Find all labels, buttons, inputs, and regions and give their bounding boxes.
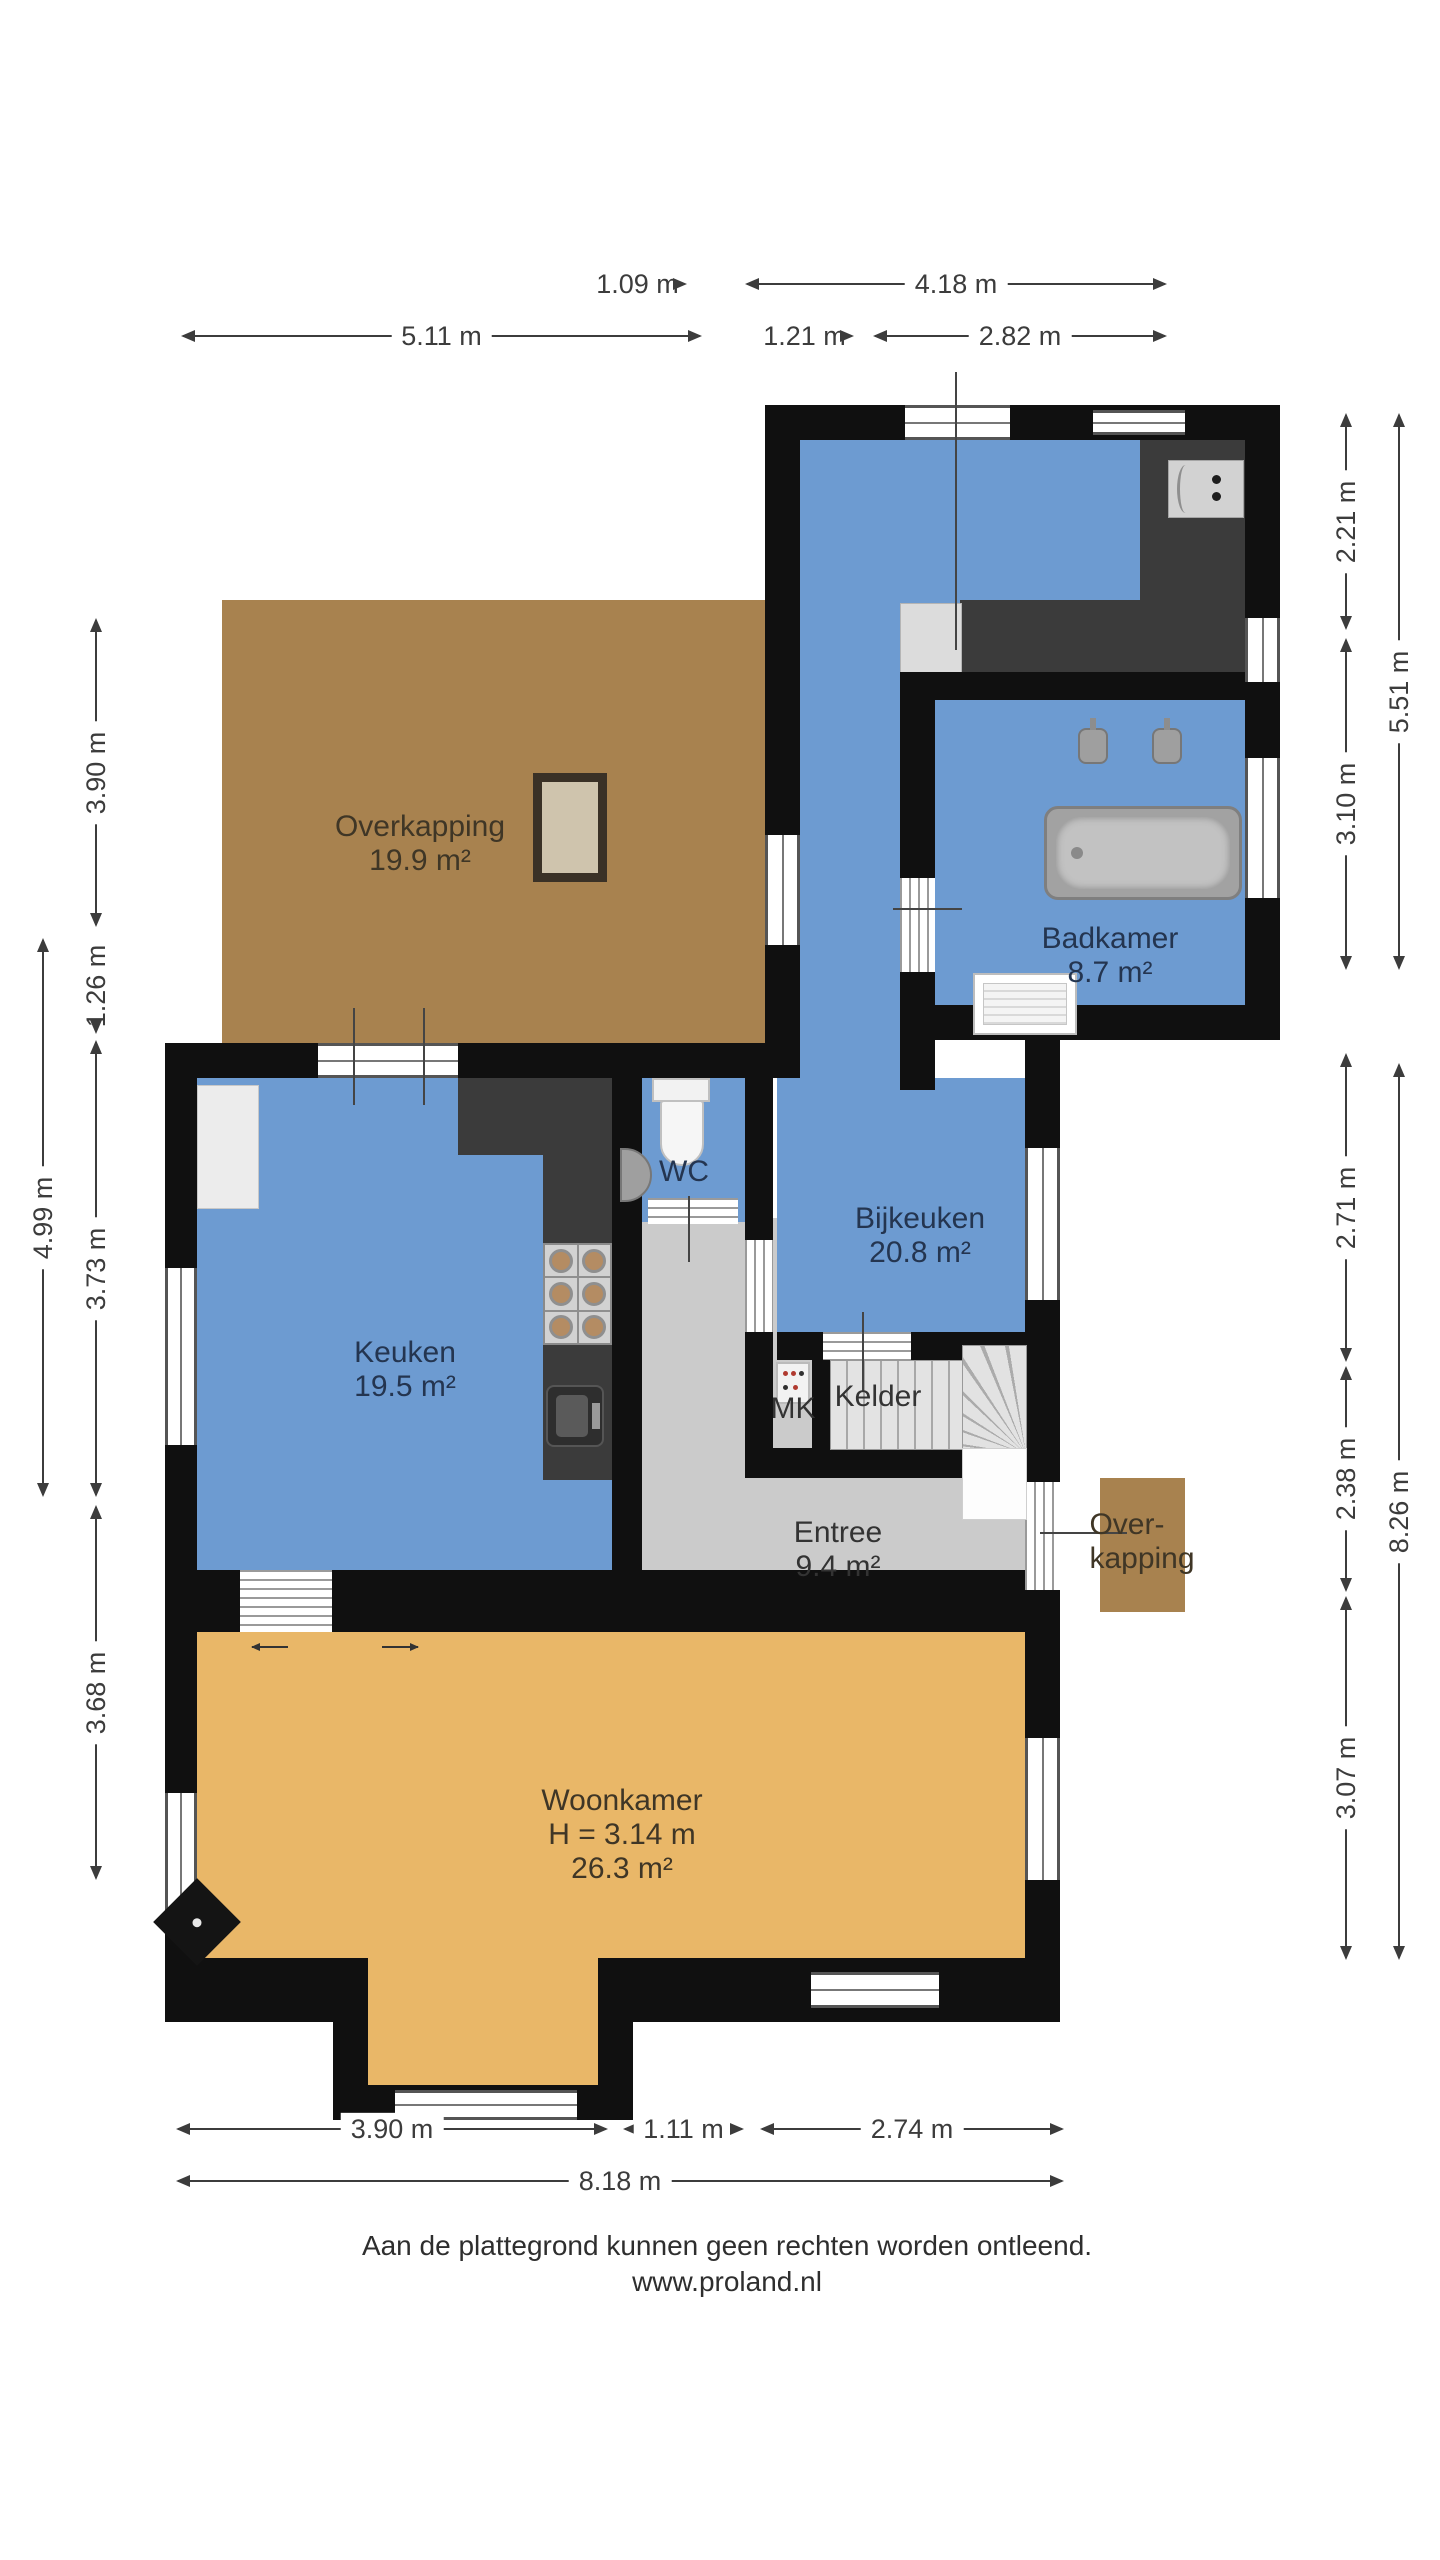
kitchen-sink-icon [546, 1385, 604, 1447]
room-area: 19.9 m² [335, 844, 505, 878]
wall-mk-bottom [745, 1448, 965, 1478]
dim-right-counter: 2.21 m [1345, 415, 1347, 628]
mk-label: MK [771, 1392, 816, 1426]
badkamer-label: Badkamer 8.7 m² [1042, 922, 1179, 990]
woonkamer-label: Woonkamer H = 3.14 m 26.3 m² [541, 1784, 702, 1886]
dim-left-total: 4.99 m [42, 940, 44, 1495]
window-keuken-top [318, 1043, 458, 1078]
toilet-cistern-icon [652, 1078, 710, 1102]
bijkeuken-label: Bijkeuken 20.8 m² [855, 1202, 985, 1270]
dim-right-badkamer: 3.10 m [1345, 640, 1347, 968]
room-name: Overkapping [335, 810, 505, 844]
bijkeuken-corridor-floor [800, 672, 900, 1092]
badkamer-door [900, 878, 935, 972]
door-swing-left-icon [252, 1646, 288, 1648]
entree-strip-door [745, 1240, 773, 1332]
dim-label: 3.73 m [80, 1217, 112, 1320]
garden-table-icon [533, 773, 607, 882]
stove-icon [543, 1243, 612, 1345]
woonkamer-door [240, 1570, 332, 1632]
overkapping-label: Overkapping 19.9 m² [335, 810, 505, 878]
dim-label: 5.11 m [391, 320, 492, 352]
dim-right-wing-total: 5.51 m [1398, 415, 1400, 968]
room-name: kapping [1089, 1542, 1194, 1576]
window-topwing-1 [905, 405, 1010, 440]
room-height: H = 3.14 m [541, 1818, 702, 1852]
dim-label: 4.18 m [905, 268, 1008, 300]
dim-top-left-width: 5.11 m [183, 335, 700, 337]
dim-label: 4.99 m [27, 1166, 59, 1269]
dim-right-woonkamer: 3.07 m [1345, 1598, 1347, 1958]
dim-label: 2.74 m [861, 2113, 964, 2145]
room-name: Over- [1089, 1508, 1194, 1542]
wall-corridor-stub [900, 1040, 935, 1090]
bijkeuken-entree-door [823, 1332, 911, 1360]
room-name: Entree [794, 1516, 882, 1550]
bath-faucet-icon [1152, 728, 1182, 764]
dim-top-right: 2.82 m [875, 335, 1165, 337]
dim-right-entree: 2.38 m [1345, 1368, 1347, 1590]
wall-topwing-top [765, 405, 1280, 440]
wc-label: WC [659, 1155, 709, 1189]
dim-label: 3.90 m [80, 721, 112, 824]
room-name: Bijkeuken [855, 1202, 985, 1236]
dim-label: 5.51 m [1383, 640, 1415, 743]
kitchen-cabinet-icon [197, 1085, 259, 1209]
stairs-landing [962, 1448, 1027, 1520]
dim-label: 1.21 m [753, 320, 856, 352]
disclaimer: Aan de plattegrond kunnen geen rechten w… [362, 2228, 1092, 2300]
wall-keuken-right [612, 1043, 642, 1570]
dim-left-small: 1.26 m [95, 940, 97, 1032]
room-name: Kelder [835, 1380, 922, 1414]
wall-house-top [165, 1043, 765, 1078]
bathtub-icon [1044, 806, 1242, 900]
dim-label: 8.18 m [569, 2165, 672, 2197]
wall-badkamer-bottom [900, 1005, 1280, 1040]
door-swing-right-icon [382, 1646, 418, 1648]
room-area: 8.7 m² [1042, 956, 1179, 990]
woonkamer-bump-floor [368, 1958, 598, 2085]
tick-line [893, 908, 962, 910]
dim-label: 3.07 m [1330, 1727, 1362, 1830]
bath-faucet-icon [1078, 728, 1108, 764]
room-area: 20.8 m² [855, 1236, 985, 1270]
overkapping-small-label: Over- kapping [1089, 1508, 1194, 1576]
room-name: Woonkamer [541, 1784, 702, 1818]
disclaimer-line2: www.proland.nl [362, 2264, 1092, 2300]
dim-label: 1.11 m [633, 2113, 734, 2145]
keuken-label: Keuken 19.5 m² [354, 1336, 456, 1404]
entree-label: Entree 9.4 m² [794, 1516, 882, 1584]
dim-left-keuken: 3.73 m [95, 1042, 97, 1495]
winding-stairs-icon [962, 1345, 1027, 1450]
dim-bottom-right: 2.74 m [762, 2128, 1062, 2130]
disclaimer-line1: Aan de plattegrond kunnen geen rechten w… [362, 2228, 1092, 2264]
window-bijkeuken-right [1025, 1148, 1060, 1300]
dim-left-overkapping: 3.90 m [95, 620, 97, 925]
window-topwing-right [1245, 618, 1280, 682]
dim-label: 1.26 m [80, 935, 112, 1038]
washer-icon [1168, 460, 1244, 518]
tick-line [688, 1196, 690, 1262]
dim-top-mid: 1.21 m [757, 335, 852, 337]
room-name: WC [659, 1155, 709, 1189]
dim-right-house-total: 8.26 m [1398, 1065, 1400, 1958]
window-keuken-left [165, 1268, 197, 1445]
dim-bottom-total: 8.18 m [178, 2180, 1062, 2182]
dim-top-wing-width: 4.18 m [747, 283, 1165, 285]
front-door [1025, 1482, 1060, 1590]
window-woonkamer-right [1025, 1738, 1060, 1880]
dishwasher-icon [900, 603, 962, 674]
dim-label: 3.10 m [1330, 753, 1362, 856]
dim-bottom-left: 3.90 m [178, 2128, 606, 2130]
wc-door [648, 1198, 738, 1224]
tick-line [955, 372, 957, 650]
wall-under-counter [935, 672, 1245, 700]
tick-line [353, 1008, 355, 1105]
window-topwing-2 [1093, 410, 1185, 435]
window-woonkamer-bottom [811, 1972, 939, 2008]
dim-label: 8.26 m [1383, 1460, 1415, 1563]
tick-line [423, 1008, 425, 1105]
dim-left-woonkamer: 3.68 m [95, 1507, 97, 1878]
utility-counter-bottom [960, 600, 1245, 672]
dim-label: 1.09 m [586, 268, 689, 300]
room-area: 9.4 m² [794, 1550, 882, 1584]
room-name: Badkamer [1042, 922, 1179, 956]
wall-house-bottom-left [165, 1958, 333, 2022]
room-area: 19.5 m² [354, 1370, 456, 1404]
dim-label: 2.71 m [1330, 1156, 1362, 1259]
dim-label: 2.21 m [1330, 470, 1362, 573]
room-area: 26.3 m² [541, 1852, 702, 1886]
dim-label: 3.68 m [80, 1641, 112, 1744]
window-corridor-left [765, 835, 800, 945]
kitchen-counter-top [458, 1078, 612, 1155]
dim-label: 3.90 m [341, 2113, 444, 2145]
wall-topwing-right [1245, 405, 1280, 1040]
room-name: Keuken [354, 1336, 456, 1370]
floor-plan: Overkapping 19.9 m² Badkamer 8.7 m² Bijk… [0, 0, 1440, 2560]
room-name: MK [771, 1392, 816, 1426]
dim-bottom-mid: 1.11 m [625, 2128, 742, 2130]
dim-label: 2.82 m [969, 320, 1072, 352]
wall-topwing-left [765, 405, 800, 1078]
dim-label: 2.38 m [1330, 1428, 1362, 1531]
dim-right-bijkeuken: 2.71 m [1345, 1055, 1347, 1360]
kelder-label: Kelder [835, 1380, 922, 1414]
dim-top-small: 1.09 m [590, 283, 685, 285]
window-badkamer-right [1245, 758, 1280, 898]
